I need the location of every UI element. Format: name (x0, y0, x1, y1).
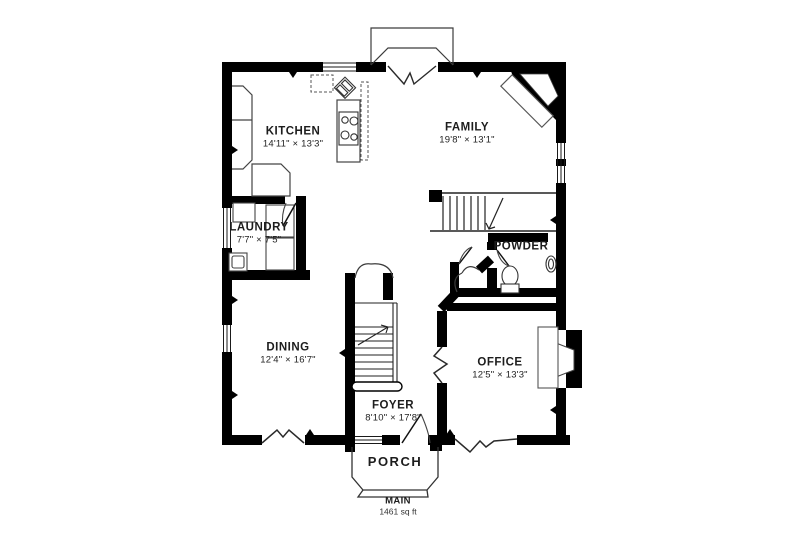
bow-window-office-icon (455, 439, 517, 452)
room-name: LAUNDRY (229, 222, 288, 235)
toilet-icon (501, 266, 519, 293)
cased-opening-icons (355, 264, 479, 292)
kitchen-peninsula-icon (252, 164, 290, 196)
room-label-powder: POWDER (494, 241, 549, 254)
room-label-dining: DINING 12'4" × 16'7" (260, 342, 316, 367)
room-label-office: OFFICE 12'5" × 13'3" (472, 357, 528, 382)
bay-window-top-icon (371, 28, 453, 84)
fireplace-icon (501, 62, 566, 130)
room-dimensions: 7'7" × 7'5" (229, 235, 288, 247)
stairs-upper-icon (429, 190, 556, 231)
opening-office-side-icon (434, 347, 447, 383)
room-name: FAMILY (439, 122, 495, 135)
room-label-porch: PORCH (368, 455, 422, 469)
room-dimensions: 14'11" × 13'3" (263, 139, 323, 151)
stairs-foyer-icon (352, 303, 402, 391)
window-icon (323, 63, 356, 71)
powder-fixtures (501, 256, 556, 293)
floor-area-label: 1461 sq ft (379, 507, 416, 517)
interior-diagonal-walls (441, 259, 491, 309)
room-label-family: FAMILY 19'8" × 13'1" (439, 122, 495, 147)
room-name: FOYER (365, 400, 421, 413)
kitchen-sink-icon (334, 77, 355, 98)
floor-level-label: MAIN (379, 496, 416, 507)
room-label-kitchen: KITCHEN 14'11" × 13'3" (263, 126, 323, 151)
room-dimensions: 12'4" × 16'7" (260, 355, 316, 367)
window-icon (224, 325, 231, 352)
room-dimensions: 19'8" × 13'1" (439, 135, 495, 147)
room-name: DINING (260, 342, 316, 355)
window-icon (355, 437, 382, 444)
floor-footer: MAIN 1461 sq ft (379, 496, 416, 517)
bow-window-dining-icon (262, 430, 304, 443)
bay-window-office-icon (538, 327, 582, 388)
closet-door-icon (459, 247, 472, 264)
laundry-cabinet-icon (233, 203, 255, 222)
powder-sink-icon (546, 256, 556, 272)
room-name: PORCH (368, 455, 422, 469)
room-name: KITCHEN (263, 126, 323, 139)
room-name: OFFICE (472, 357, 528, 370)
room-name: POWDER (494, 241, 549, 254)
room-label-laundry: LAUNDRY 7'7" × 7'5" (229, 222, 288, 247)
window-seat-icon (538, 327, 558, 388)
floor-plan-page: KITCHEN 14'11" × 13'3" FAMILY 19'8" × 13… (0, 0, 800, 533)
room-label-foyer: FOYER 8'10" × 17'8" (365, 400, 421, 425)
room-dimensions: 8'10" × 17'8" (365, 413, 421, 425)
room-dimensions: 12'5" × 13'3" (472, 370, 528, 382)
